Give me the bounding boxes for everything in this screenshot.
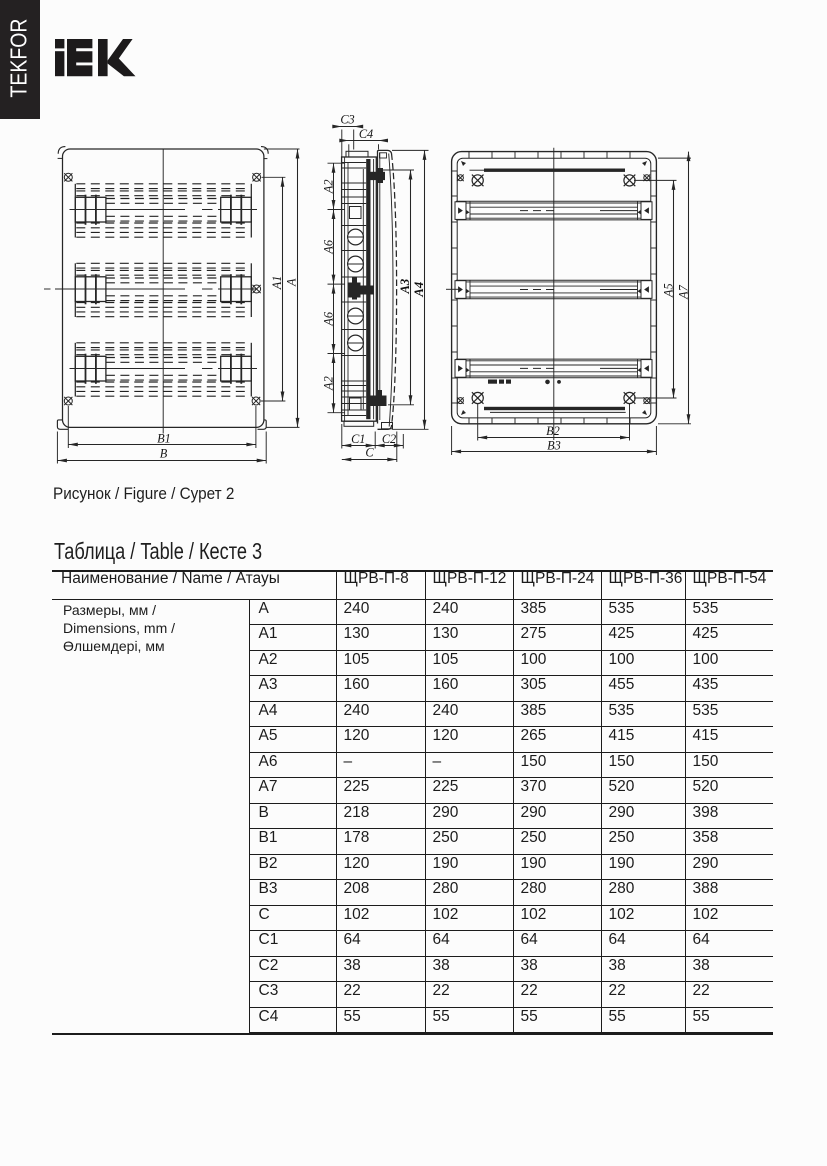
svg-text:A5: A5 — [662, 283, 676, 298]
svg-text:A6: A6 — [321, 239, 335, 255]
svg-text:A3: A3 — [398, 279, 412, 295]
svg-text:A2: A2 — [321, 376, 335, 391]
svg-text:A6: A6 — [321, 311, 335, 327]
svg-text:C2: C2 — [382, 432, 396, 446]
svg-text:C: C — [365, 446, 374, 460]
svg-text:C4: C4 — [359, 127, 373, 141]
svg-text:B: B — [160, 447, 168, 461]
svg-text:A7: A7 — [677, 284, 691, 300]
svg-text:C3: C3 — [340, 113, 354, 127]
svg-text:A: A — [284, 278, 298, 287]
svg-text:B2: B2 — [546, 424, 560, 438]
svg-text:A1: A1 — [270, 276, 284, 291]
svg-text:A2: A2 — [321, 179, 335, 194]
svg-text:B3: B3 — [547, 439, 561, 453]
svg-text:A4: A4 — [412, 282, 426, 298]
svg-text:B1: B1 — [157, 431, 171, 445]
svg-text:C1: C1 — [351, 432, 365, 446]
